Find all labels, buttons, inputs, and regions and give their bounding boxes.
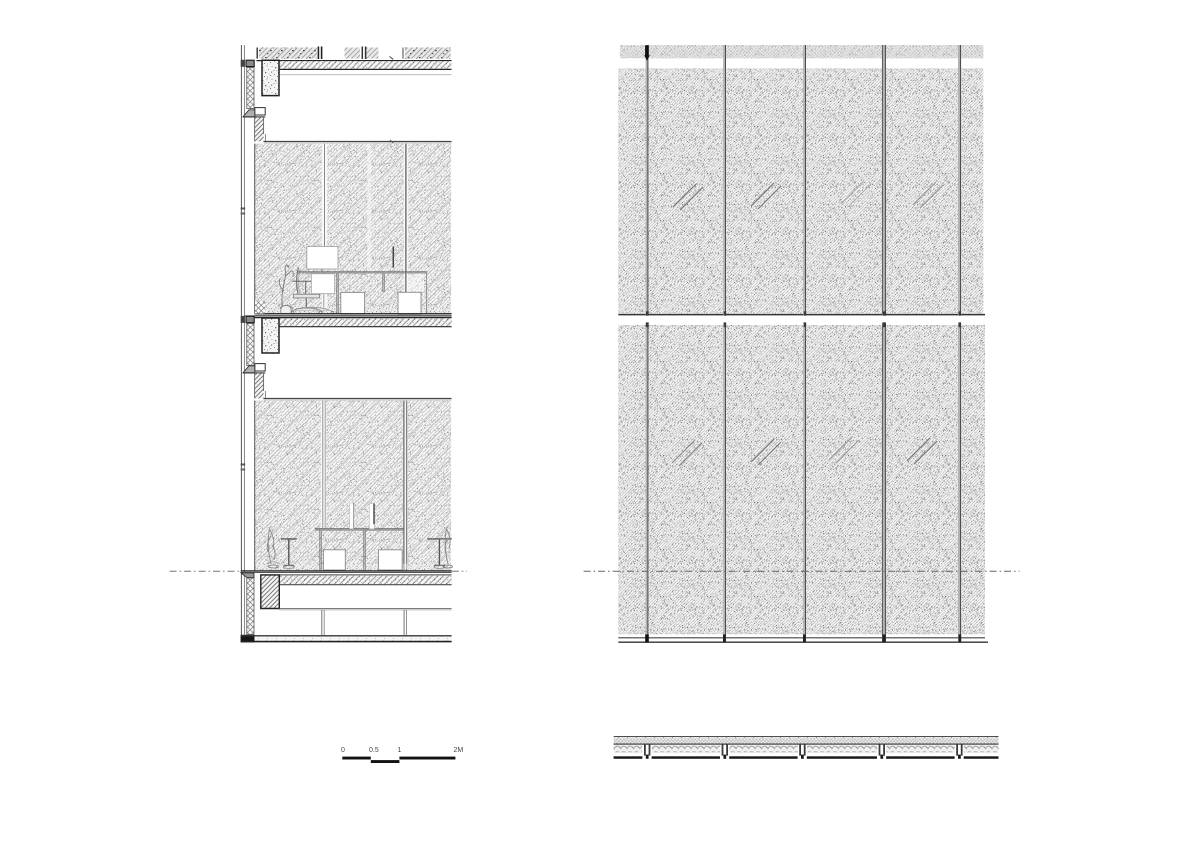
svg-text:1: 1	[398, 747, 402, 754]
svg-text:0: 0	[341, 747, 345, 754]
svg-text:2M: 2M	[454, 747, 464, 754]
svg-text:0.5: 0.5	[369, 747, 379, 754]
